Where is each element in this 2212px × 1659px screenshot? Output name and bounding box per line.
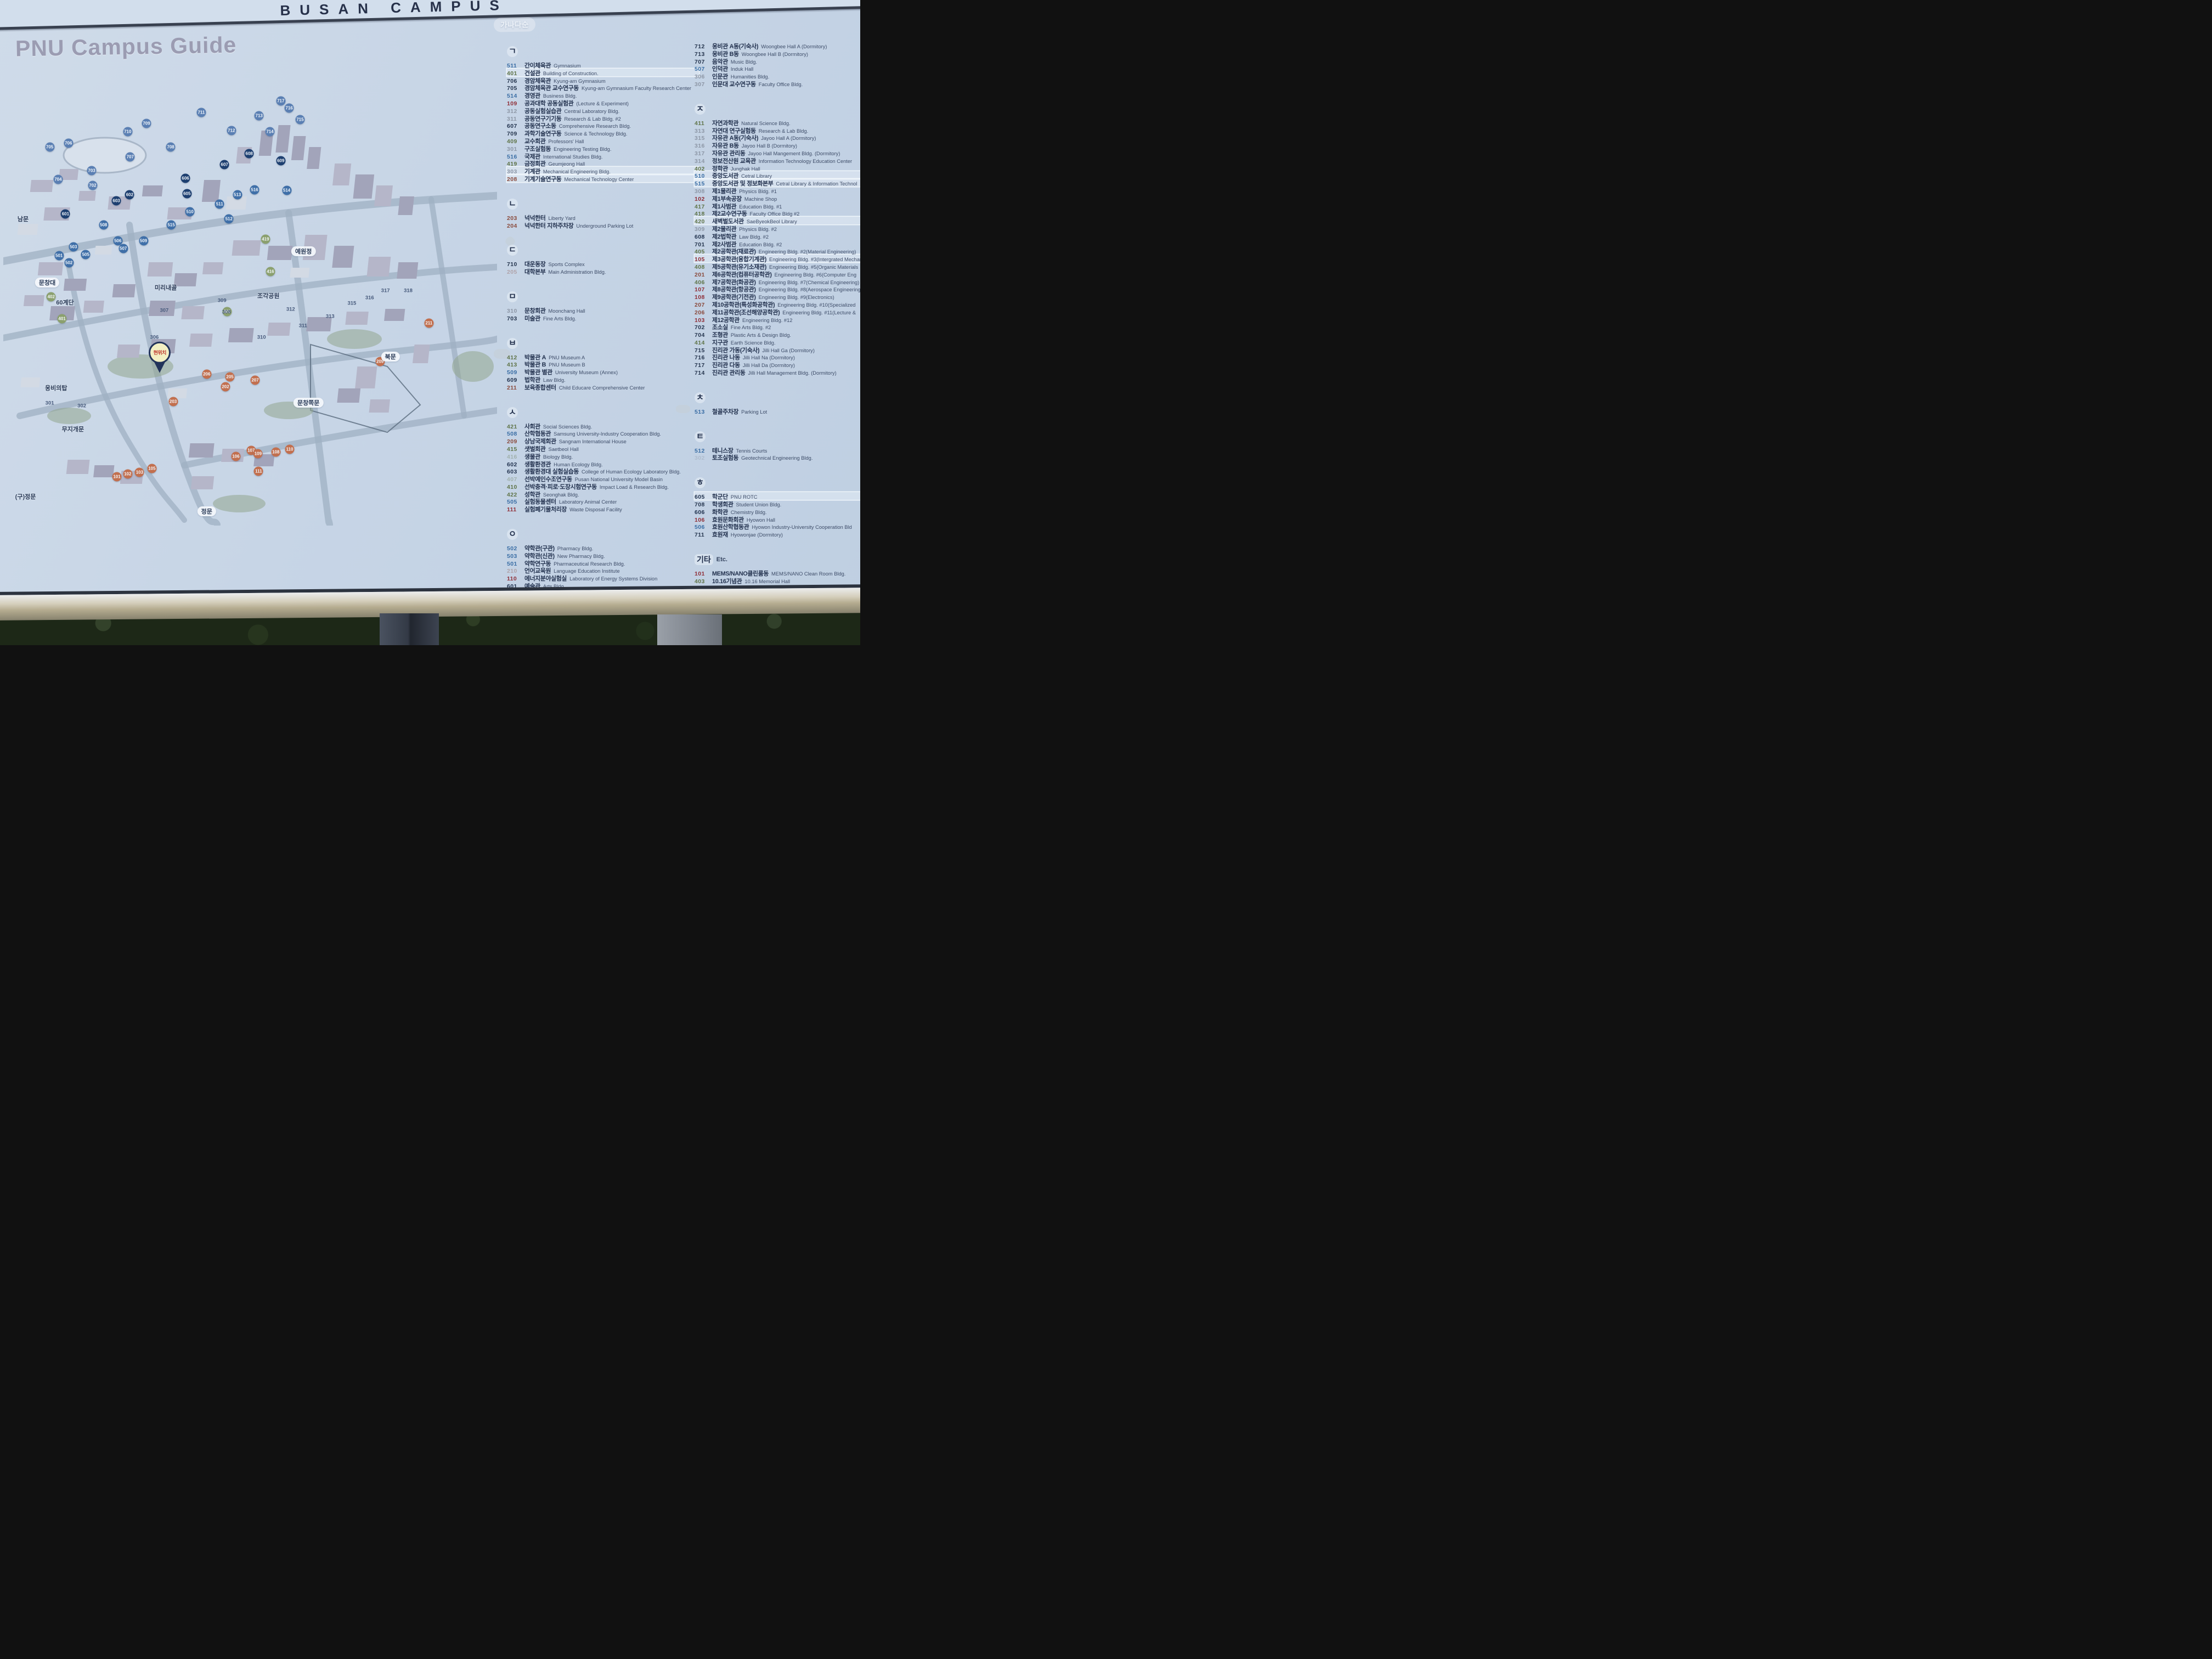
- building-number: 312: [507, 108, 524, 115]
- map-badge: 715: [295, 115, 304, 124]
- legend-row: 406제7공학관(화공관)Engineering Bldg. #7(Chemic…: [695, 278, 860, 285]
- legend-row: 414지구관Earth Science Bldg.: [695, 338, 860, 346]
- legend-section-header: 기타Etc.: [695, 554, 860, 565]
- legend-column-1: ㄱ511간이체육관Gymnasium401건설관Building of Cons…: [507, 46, 699, 604]
- building-number: 713: [695, 51, 712, 58]
- building-number: 420: [695, 218, 712, 225]
- building-name-en: Cetral Library & Information Technol: [776, 181, 857, 187]
- legend-row: 609법학관Law Bldg.: [507, 375, 699, 383]
- building-number: 302: [695, 455, 712, 461]
- building-name-en: Information Technology Education Center: [759, 159, 852, 164]
- building-number: 608: [695, 234, 712, 240]
- building-name-en: International Studies Bldg.: [543, 154, 603, 160]
- legend-section: ㅅ421사회관Social Sciences Bldg.508산학협동관Sams…: [507, 407, 699, 513]
- building-name-en: Jayoo Hall A (Dormitory): [761, 136, 816, 141]
- legend-row: 311공동연구기기동Research & Lab Bldg. #2: [507, 114, 699, 122]
- building-name-kr: 넉넉한터 지하주차장: [524, 221, 573, 230]
- legend-section-header: ㄷ: [507, 245, 699, 256]
- building-number: 509: [507, 369, 524, 376]
- legend-row: 419금정회관Geumjeong Hall: [507, 159, 699, 167]
- legend-row: 312공동실험실습관Central Laboratory Bldg.: [507, 106, 699, 114]
- building-number: 311: [507, 116, 524, 122]
- map-badge: 505: [81, 250, 91, 259]
- legend-row: 515중앙도서관 및 정보화본부Cetral Library & Informa…: [695, 179, 860, 187]
- building-name-en: Woongbee Hall A (Dormitory): [761, 44, 827, 49]
- building-number: 211: [507, 385, 524, 391]
- concrete-post: [657, 614, 722, 645]
- building-name-kr: 토조실험동: [712, 453, 738, 462]
- building-number: 405: [695, 249, 712, 255]
- building-number: 513: [695, 409, 712, 415]
- legend-section: ㅊ513철골주차장Parking Lot: [695, 392, 860, 415]
- building-name-kr: 대학본부: [524, 267, 546, 276]
- building-name-en: Woongbee Hall B (Dormitory): [742, 52, 808, 57]
- map-badge: 714: [266, 127, 275, 137]
- legend-row: 706경암체육관Kyung-am Gymnasium: [507, 76, 699, 84]
- legend-row: 206제11공학관(조선해양공학관)Engineering Bldg. #11(…: [695, 308, 860, 315]
- legend-row: 205대학본부Main Administration Bldg.: [507, 267, 699, 275]
- building-name-en: Liberty Yard: [549, 216, 575, 221]
- legend-row: 307인문대 교수연구동Faculty Office Bldg.: [695, 80, 860, 87]
- building-name-en: Humanities Bldg.: [731, 74, 769, 80]
- building-name-en: Engineering Testing Bldg.: [554, 146, 611, 152]
- building-number: 602: [507, 461, 524, 468]
- section-letter: ㅁ: [507, 291, 518, 302]
- building-name-en: Social Sciences Bldg.: [543, 424, 592, 430]
- building-name-en: Jayoo Hall B (Dormitory): [742, 143, 797, 149]
- legend-row: 107제8공학관(항공관)Engineering Bldg. #8(Aerosp…: [695, 285, 860, 292]
- building-number: 402: [695, 166, 712, 172]
- building-name-kr: 미술관: [524, 314, 540, 323]
- building-name-en: Gymnasium: [554, 63, 581, 69]
- building-number: 410: [507, 484, 524, 490]
- building-name-en: Engineering Bldg. #8(Aerospace Engineeri…: [759, 287, 860, 292]
- building-name-en: Hyowonjae (Dormitory): [731, 532, 783, 538]
- map-badge: 207: [251, 376, 260, 385]
- legend-section-header: ㅅ: [507, 407, 699, 418]
- building-name-en: Jilli Hall Da (Dormitory): [743, 363, 795, 368]
- building-number: 702: [695, 324, 712, 331]
- building-name-en: (Lecture & Experiment): [576, 101, 629, 106]
- campus-sign-photo: BUSAN CAMPUS PNU Campus Guide 가나다순: [0, 0, 860, 645]
- legend-row: 708학생회관Student Union Bldg.: [695, 500, 860, 507]
- section-letter: ㄷ: [507, 245, 518, 256]
- pin-tail-icon: [154, 362, 165, 373]
- legend-row: 420새벽벌도서관SaeByeokBeol Library: [695, 217, 860, 224]
- legend-row: 715진리관 가동(기숙사)Jilli Hall Ga (Dormitory): [695, 346, 860, 353]
- map-badge: 103: [135, 467, 144, 477]
- section-letter: ㅈ: [695, 104, 706, 115]
- legend-row: 503약학관(신관)New Pharmacy Bldg.: [507, 551, 699, 559]
- building-number: 415: [507, 446, 524, 453]
- legend-row: 509박물관 별관University Museum (Annex): [507, 368, 699, 375]
- legend-row: 410선박충격·피로·도장시험연구동Impact Load & Research…: [507, 482, 699, 490]
- map-badge: 501: [54, 251, 64, 261]
- legend-row: 209상남국제회관Sangnam International House: [507, 437, 699, 444]
- building-number: 108: [695, 294, 712, 301]
- legend-row: 710대운동장Sports Complex: [507, 259, 699, 267]
- building-name-en: Pharmacy Bldg.: [557, 546, 594, 551]
- building-name-en: Kyung-am Gymnasium: [554, 78, 606, 84]
- building-name-en: MEMS/NANO Clean Room Bldg.: [771, 571, 845, 577]
- building-name-en: Waste Disposal Facility: [569, 507, 622, 512]
- building-name-en: Student Union Bldg.: [736, 502, 782, 507]
- building-number: 606: [695, 509, 712, 516]
- map-badge: 211: [424, 319, 433, 328]
- legend-row: 211보육종합센터Child Educare Comprehensive Cen…: [507, 383, 699, 391]
- map-badge: 105: [147, 464, 156, 473]
- section-letter: ㅅ: [507, 407, 518, 418]
- building-name-en: Geotechnical Engineering Bldg.: [741, 455, 812, 461]
- map-badge: 602: [125, 190, 134, 200]
- building-number: 512: [695, 448, 712, 454]
- building-name-en: Natural Science Bldg.: [741, 121, 790, 126]
- building-number: 208: [507, 176, 524, 183]
- building-name-en: Biology Bldg.: [543, 454, 573, 460]
- building-name-kr: 실험폐기물처리장: [524, 505, 567, 513]
- map-badge: 712: [227, 126, 236, 135]
- building-name-en: SaeByeokBeol Library: [747, 219, 797, 224]
- map-badge: 708: [166, 142, 176, 151]
- building-number: 705: [507, 85, 524, 92]
- building-name-en: Hyowon Industry-University Cooperation B…: [752, 524, 851, 530]
- legend-row: 502약학관(구관)Pharmacy Bldg.: [507, 544, 699, 551]
- legend-row: 106효원문화회관Hyowon Hall: [695, 515, 860, 523]
- map-badge: 608: [245, 149, 254, 159]
- building-name-kr: 인문대 교수연구동: [712, 80, 756, 88]
- building-name-en: Law Bldg.: [543, 377, 566, 383]
- legend-row: 303기계관Mechanical Engineering Bldg.: [507, 167, 699, 174]
- map-badge: 108: [271, 448, 280, 457]
- legend-row: 711효원재Hyowonjae (Dormitory): [695, 530, 860, 538]
- section-letter: ㅂ: [507, 338, 518, 349]
- legend-row: 207제10공학관(특성화공학관)Engineering Bldg. #10(S…: [695, 300, 860, 308]
- building-name-en: Jilli Hall Ga (Dormitory): [762, 348, 815, 353]
- building-name-en: College of Human Ecology Laboratory Bldg…: [582, 469, 681, 475]
- building-number: 110: [507, 575, 524, 582]
- legend-row: 701제2사범관Education Bldg. #2: [695, 240, 860, 247]
- section-letter: ㅇ: [507, 529, 518, 540]
- building-name-en: PNU ROTC: [731, 494, 758, 500]
- map-badge: 508: [99, 220, 108, 229]
- legend-row: 416생물관Biology Bldg.: [507, 452, 699, 460]
- building-name-en: Education Bldg. #2: [739, 242, 782, 247]
- legend-row: 208기계기술연구동Mechanical Technology Center: [507, 174, 699, 182]
- building-name-en: Physics Bldg. #1: [739, 189, 777, 194]
- legend-row: 712웅비관 A동(기숙사)Woongbee Hall A (Dormitory…: [695, 42, 860, 49]
- legend-row: 407선박예인수조연구동Pusan National University Mo…: [507, 475, 699, 482]
- building-number: 507: [695, 66, 712, 72]
- legend-row: 716진리관 나동Jilli Hall Na (Dormitory): [695, 353, 860, 360]
- legend-section: ㄷ710대운동장Sports Complex205대학본부Main Admini…: [507, 245, 699, 275]
- map-badge: 507: [119, 244, 128, 253]
- building-name-en: Building of Construction.: [543, 71, 599, 76]
- building-name-en: Business Bldg.: [543, 93, 577, 99]
- building-name-en: Engineering Bldg. #2(Material Engineerin…: [759, 249, 856, 255]
- building-name-kr: 효원재: [712, 530, 728, 539]
- building-number: 717: [695, 362, 712, 369]
- building-number: 307: [695, 81, 712, 88]
- legend-row: 402정학관Junghak Hall: [695, 164, 860, 172]
- legend-row: 415샛벌회관Saetbeol Hall: [507, 444, 699, 452]
- map-badge: 302: [77, 403, 86, 409]
- building-number: 707: [695, 59, 712, 65]
- legend-row: 421사회관Social Sciences Bldg.: [507, 422, 699, 430]
- legend-row: 317자유관 관리동Jayoo Hall Mangement Bldg. (Do…: [695, 149, 860, 156]
- campus-map: 7177167157137117127147107097067057087077…: [3, 81, 497, 526]
- map-badge: 318: [404, 287, 413, 294]
- building-name-en: Samsung University-Industry Cooperation …: [554, 431, 661, 437]
- map-badge: 316: [365, 295, 374, 301]
- building-number: 203: [507, 215, 524, 222]
- building-name-en: Jilli Hall Management Bldg. (Dormitory): [748, 370, 837, 376]
- building-name-kr: 기계기술연구동: [524, 174, 561, 183]
- building-name-en: Chemistry Bldg.: [731, 510, 767, 515]
- map-badge: 713: [255, 111, 264, 121]
- section-letter: ㅌ: [695, 431, 706, 442]
- map-badge: 203: [168, 397, 178, 407]
- map-label: 미리내골: [155, 283, 177, 292]
- building-name-en: Mechanical Technology Center: [564, 177, 634, 182]
- legend-row: 203넉넉한터Liberty Yard: [507, 213, 699, 221]
- legend-row: 508산학협동관Samsung University-Industry Coop…: [507, 429, 699, 437]
- building-name-en: Music Bldg.: [731, 59, 757, 65]
- map-label: 남문: [18, 215, 29, 223]
- map-badge: 514: [282, 186, 291, 195]
- building-number: 315: [695, 135, 712, 142]
- building-number: 607: [507, 123, 524, 129]
- building-name-en: Seonghak Bldg.: [543, 492, 579, 498]
- map-badge: 101: [112, 472, 122, 481]
- map-badge: 315: [347, 301, 356, 307]
- building-number: 505: [507, 499, 524, 505]
- building-number: 411: [695, 120, 712, 127]
- legend-row: 411자연과학관Natural Science Bldg.: [695, 119, 860, 126]
- building-number: 306: [695, 74, 712, 80]
- building-number: 609: [507, 377, 524, 383]
- building-number: 417: [695, 204, 712, 210]
- current-location-marker: 현위치: [149, 341, 171, 373]
- building-number: 715: [695, 347, 712, 354]
- building-name-en: Law Bldg. #2: [739, 234, 769, 240]
- building-number: 414: [695, 340, 712, 346]
- map-badge: 605: [182, 189, 191, 198]
- legend-section: ㅎ605학군단PNU ROTC708학생회관Student Union Bldg…: [695, 477, 860, 538]
- building-number: 101: [695, 571, 712, 577]
- building-number: 422: [507, 492, 524, 498]
- building-number: 418: [695, 211, 712, 217]
- legend-section: 기타Etc.101MEMS/NANO클린룸동MEMS/NANO Clean Ro…: [695, 554, 860, 584]
- map-badge: 308: [222, 309, 231, 315]
- sort-order-badge: 가나다순: [494, 17, 535, 32]
- page-title: PNU Campus Guide: [15, 32, 237, 61]
- legend-row: 605학군단PNU ROTC: [695, 492, 860, 500]
- building-name-en: Laboratory of Energy Systems Division: [569, 576, 657, 582]
- building-number: 706: [507, 78, 524, 84]
- building-number: 201: [695, 272, 712, 278]
- building-name-en: Sports Complex: [549, 262, 585, 267]
- map-badge: 202: [221, 382, 230, 392]
- map-badge: 419: [261, 235, 270, 244]
- legend-row: 501약학연구동Pharmaceutical Research Bldg.: [507, 559, 699, 567]
- legend-row: 413박물관 BPNU Museum B: [507, 360, 699, 368]
- building-name-kr: 철골주차장: [712, 407, 738, 416]
- building-number: 704: [695, 332, 712, 338]
- map-badge: 702: [88, 181, 97, 190]
- building-name-en: Engineering Bldg. #11(Lecture &: [782, 310, 856, 315]
- building-name-en: Engineering Bldg. #10(Specialized: [777, 302, 855, 308]
- map-badge: 502: [64, 258, 74, 268]
- map-label: (구)정문: [15, 492, 36, 501]
- map-label: 문창쪽문: [294, 398, 323, 408]
- legend-row: 512테니스장Tennis Courts: [695, 446, 860, 454]
- building-number: 703: [507, 315, 524, 322]
- map-badge: 312: [286, 306, 295, 312]
- building-number: 711: [695, 532, 712, 538]
- building-number: 206: [695, 309, 712, 316]
- map-badge: 515: [167, 220, 176, 229]
- legend-row: 418제2교수연구동Faculty Office Bldg #2: [695, 209, 860, 217]
- building-number: 109: [507, 100, 524, 107]
- building-name-en: Jayoo Hall Mangement Bldg. (Dormitory): [748, 151, 840, 156]
- building-number: 416: [507, 454, 524, 460]
- map-badge: 311: [299, 323, 307, 329]
- building-number: 209: [507, 438, 524, 445]
- building-number: 605: [695, 494, 712, 500]
- map-badge: 110: [285, 445, 295, 454]
- map-label: 무지개문: [62, 425, 84, 433]
- building-name-en: Professors' Hall: [549, 139, 584, 144]
- building-name-en: Physics Bldg. #2: [739, 227, 777, 232]
- building-number: 515: [695, 180, 712, 187]
- map-badge: 206: [202, 369, 211, 379]
- map-badge: 709: [142, 119, 151, 128]
- building-name-en: Jilli Hall Na (Dormitory): [743, 355, 795, 360]
- legend-row: 514경영관Business Bldg.: [507, 91, 699, 99]
- legend-row: 313자연대 연구실험동Research & Lab Bldg.: [695, 126, 860, 134]
- legend-row: 109공과대학 공동실험관(Lecture & Experiment): [507, 99, 699, 106]
- building-number: 105: [695, 256, 712, 263]
- building-name-kr: 10.16기념관: [712, 577, 742, 585]
- building-name-en: New Pharmacy Bldg.: [557, 554, 605, 559]
- map-badge: 607: [220, 160, 229, 170]
- sign-top-strip: BUSAN CAMPUS: [0, 0, 860, 30]
- building-name-en: Tennis Courts: [736, 448, 768, 454]
- building-number: 107: [695, 286, 712, 293]
- legend-section: ㅈ411자연과학관Natural Science Bldg.313자연대 연구실…: [695, 104, 860, 376]
- legend-row: 714진리관 관리동Jilli Hall Management Bldg. (D…: [695, 368, 860, 376]
- building-number: 409: [507, 138, 524, 145]
- building-name-en: Main Administration Bldg.: [549, 269, 606, 275]
- building-name-en: Junghak Hall: [731, 166, 760, 172]
- building-number: 204: [507, 223, 524, 229]
- building-number: 303: [507, 168, 524, 175]
- map-badge: 503: [69, 242, 78, 252]
- current-location-label: 현위치: [154, 349, 166, 356]
- map-badge: 317: [381, 287, 390, 294]
- building-number: 708: [695, 501, 712, 508]
- building-number: 103: [695, 317, 712, 324]
- building-number: 407: [507, 476, 524, 483]
- building-number: 603: [507, 469, 524, 475]
- map-label: 북문: [381, 352, 399, 362]
- map-badge: 402: [47, 292, 56, 301]
- legend-row: 702조소실Fine Arts Bldg. #2: [695, 323, 860, 330]
- building-name-en: Earth Science Bldg.: [731, 340, 776, 346]
- legend-row: 316자유관 B동Jayoo Hall B (Dormitory): [695, 141, 860, 149]
- legend-row: 412박물관 APNU Museum A: [507, 353, 699, 360]
- map-badge: 512: [224, 215, 234, 224]
- legend-row: 408제5공학관(유기소재관)Engineering Bldg. #5(Orga…: [695, 262, 860, 270]
- legend-row: 602생활환경관Human Ecology Bldg.: [507, 460, 699, 467]
- building-number: 502: [507, 545, 524, 552]
- legend-row: 506효원산학협동관Hyowon Industry-University Coo…: [695, 522, 860, 530]
- building-name-kr: 진리관 관리동: [712, 368, 746, 377]
- building-name-en: Research & Lab Bldg.: [759, 128, 808, 134]
- building-name-en: Parking Lot: [741, 409, 767, 415]
- building-name-en: Pharmaceutical Research Bldg.: [554, 561, 625, 567]
- building-number: 102: [695, 196, 712, 202]
- map-badge: 710: [123, 127, 132, 136]
- building-name-en: Sangnam International House: [559, 439, 627, 444]
- building-name-en: Saetbeol Hall: [549, 447, 579, 452]
- section-letter: ㅊ: [695, 392, 706, 403]
- legend-row: 608제2법학관Law Bldg. #2: [695, 232, 860, 240]
- legend-section-header: ㅌ: [695, 431, 860, 442]
- section-letter-en: Etc.: [716, 556, 727, 563]
- map-badge: 313: [326, 314, 335, 320]
- legend-section-header: ㄴ: [507, 199, 699, 210]
- legend-section-header: ㅊ: [695, 392, 860, 403]
- building-name-en: Moonchang Hall: [549, 308, 585, 314]
- building-name-en: Faculty Office Bldg.: [759, 82, 803, 87]
- map-badge: 601: [61, 210, 70, 219]
- legend-row: 510중앙도서관Cetral Library: [695, 171, 860, 179]
- building-name-en: PNU Museum B: [549, 362, 585, 368]
- legend-row: 204넉넉한터 지하주차장Underground Parking Lot: [507, 221, 699, 229]
- building-number: 514: [507, 93, 524, 99]
- map-badge: 516: [250, 185, 259, 194]
- building-name-en: Kyung-am Gymnasium Faculty Research Cent…: [582, 86, 691, 91]
- section-letter: ㄴ: [507, 199, 518, 210]
- building-name-en: Hyowon Hall: [747, 517, 775, 523]
- legend-row: 709과학기술연구동Science & Technology Bldg.: [507, 129, 699, 137]
- map-badge: 717: [276, 97, 285, 106]
- building-name-en: University Museum (Annex): [555, 370, 618, 375]
- legend-section-header: ㅎ: [695, 477, 860, 488]
- building-number: 712: [695, 43, 712, 50]
- legend-row: 606화학관Chemistry Bldg.: [695, 507, 860, 515]
- map-badge: 706: [64, 138, 73, 148]
- legend-row: 101MEMS/NANO클린룸동MEMS/NANO Clean Room Bld…: [695, 569, 860, 577]
- building-name-en: Plastic Arts & Design Bldg.: [731, 332, 791, 338]
- building-number: 408: [695, 264, 712, 270]
- building-name-en: Engineering Bldg. #3(Intergrated Mechan: [769, 257, 860, 262]
- legend-section: 712웅비관 A동(기숙사)Woongbee Hall A (Dormitory…: [695, 42, 860, 87]
- building-name-en: Impact Load & Research Bldg.: [600, 484, 669, 490]
- building-name-en: Laboratory Animal Center: [559, 499, 617, 505]
- building-name-en: Engineering Bldg. #6(Computer Eng: [775, 272, 856, 278]
- legend-row: 405제2공학관(재료관)Engineering Bldg. #2(Materi…: [695, 247, 860, 255]
- map-badge: 309: [218, 298, 227, 304]
- building-name-en: Education Bldg. #1: [739, 204, 782, 210]
- building-name-en: Science & Technology Bldg.: [564, 131, 627, 137]
- building-name-en: Fine Arts Bldg. #2: [731, 325, 771, 330]
- map-badge: 306: [150, 334, 159, 340]
- map-badge: 510: [185, 207, 195, 217]
- building-number: 210: [507, 568, 524, 574]
- building-number: 205: [507, 269, 524, 275]
